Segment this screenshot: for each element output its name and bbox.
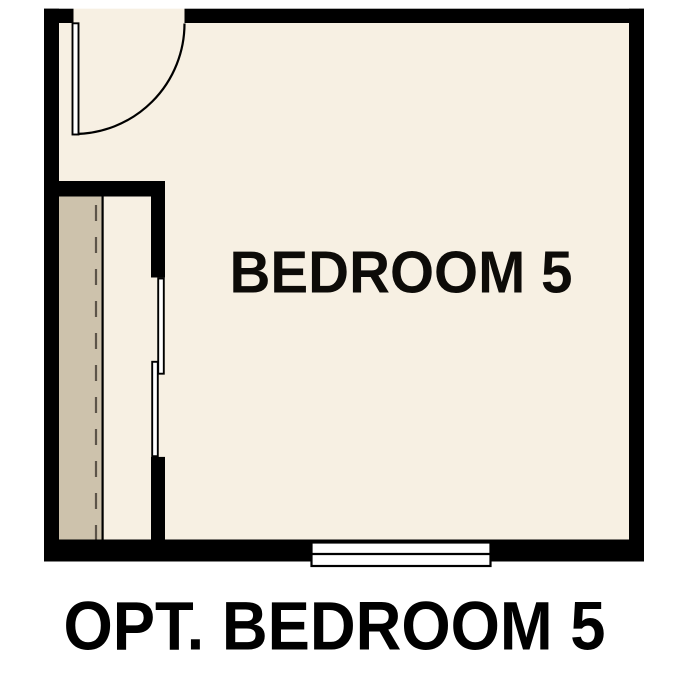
svg-text:BEDROOM 5: BEDROOM 5	[230, 240, 573, 306]
svg-text:OPT. BEDROOM 5: OPT. BEDROOM 5	[64, 588, 606, 665]
